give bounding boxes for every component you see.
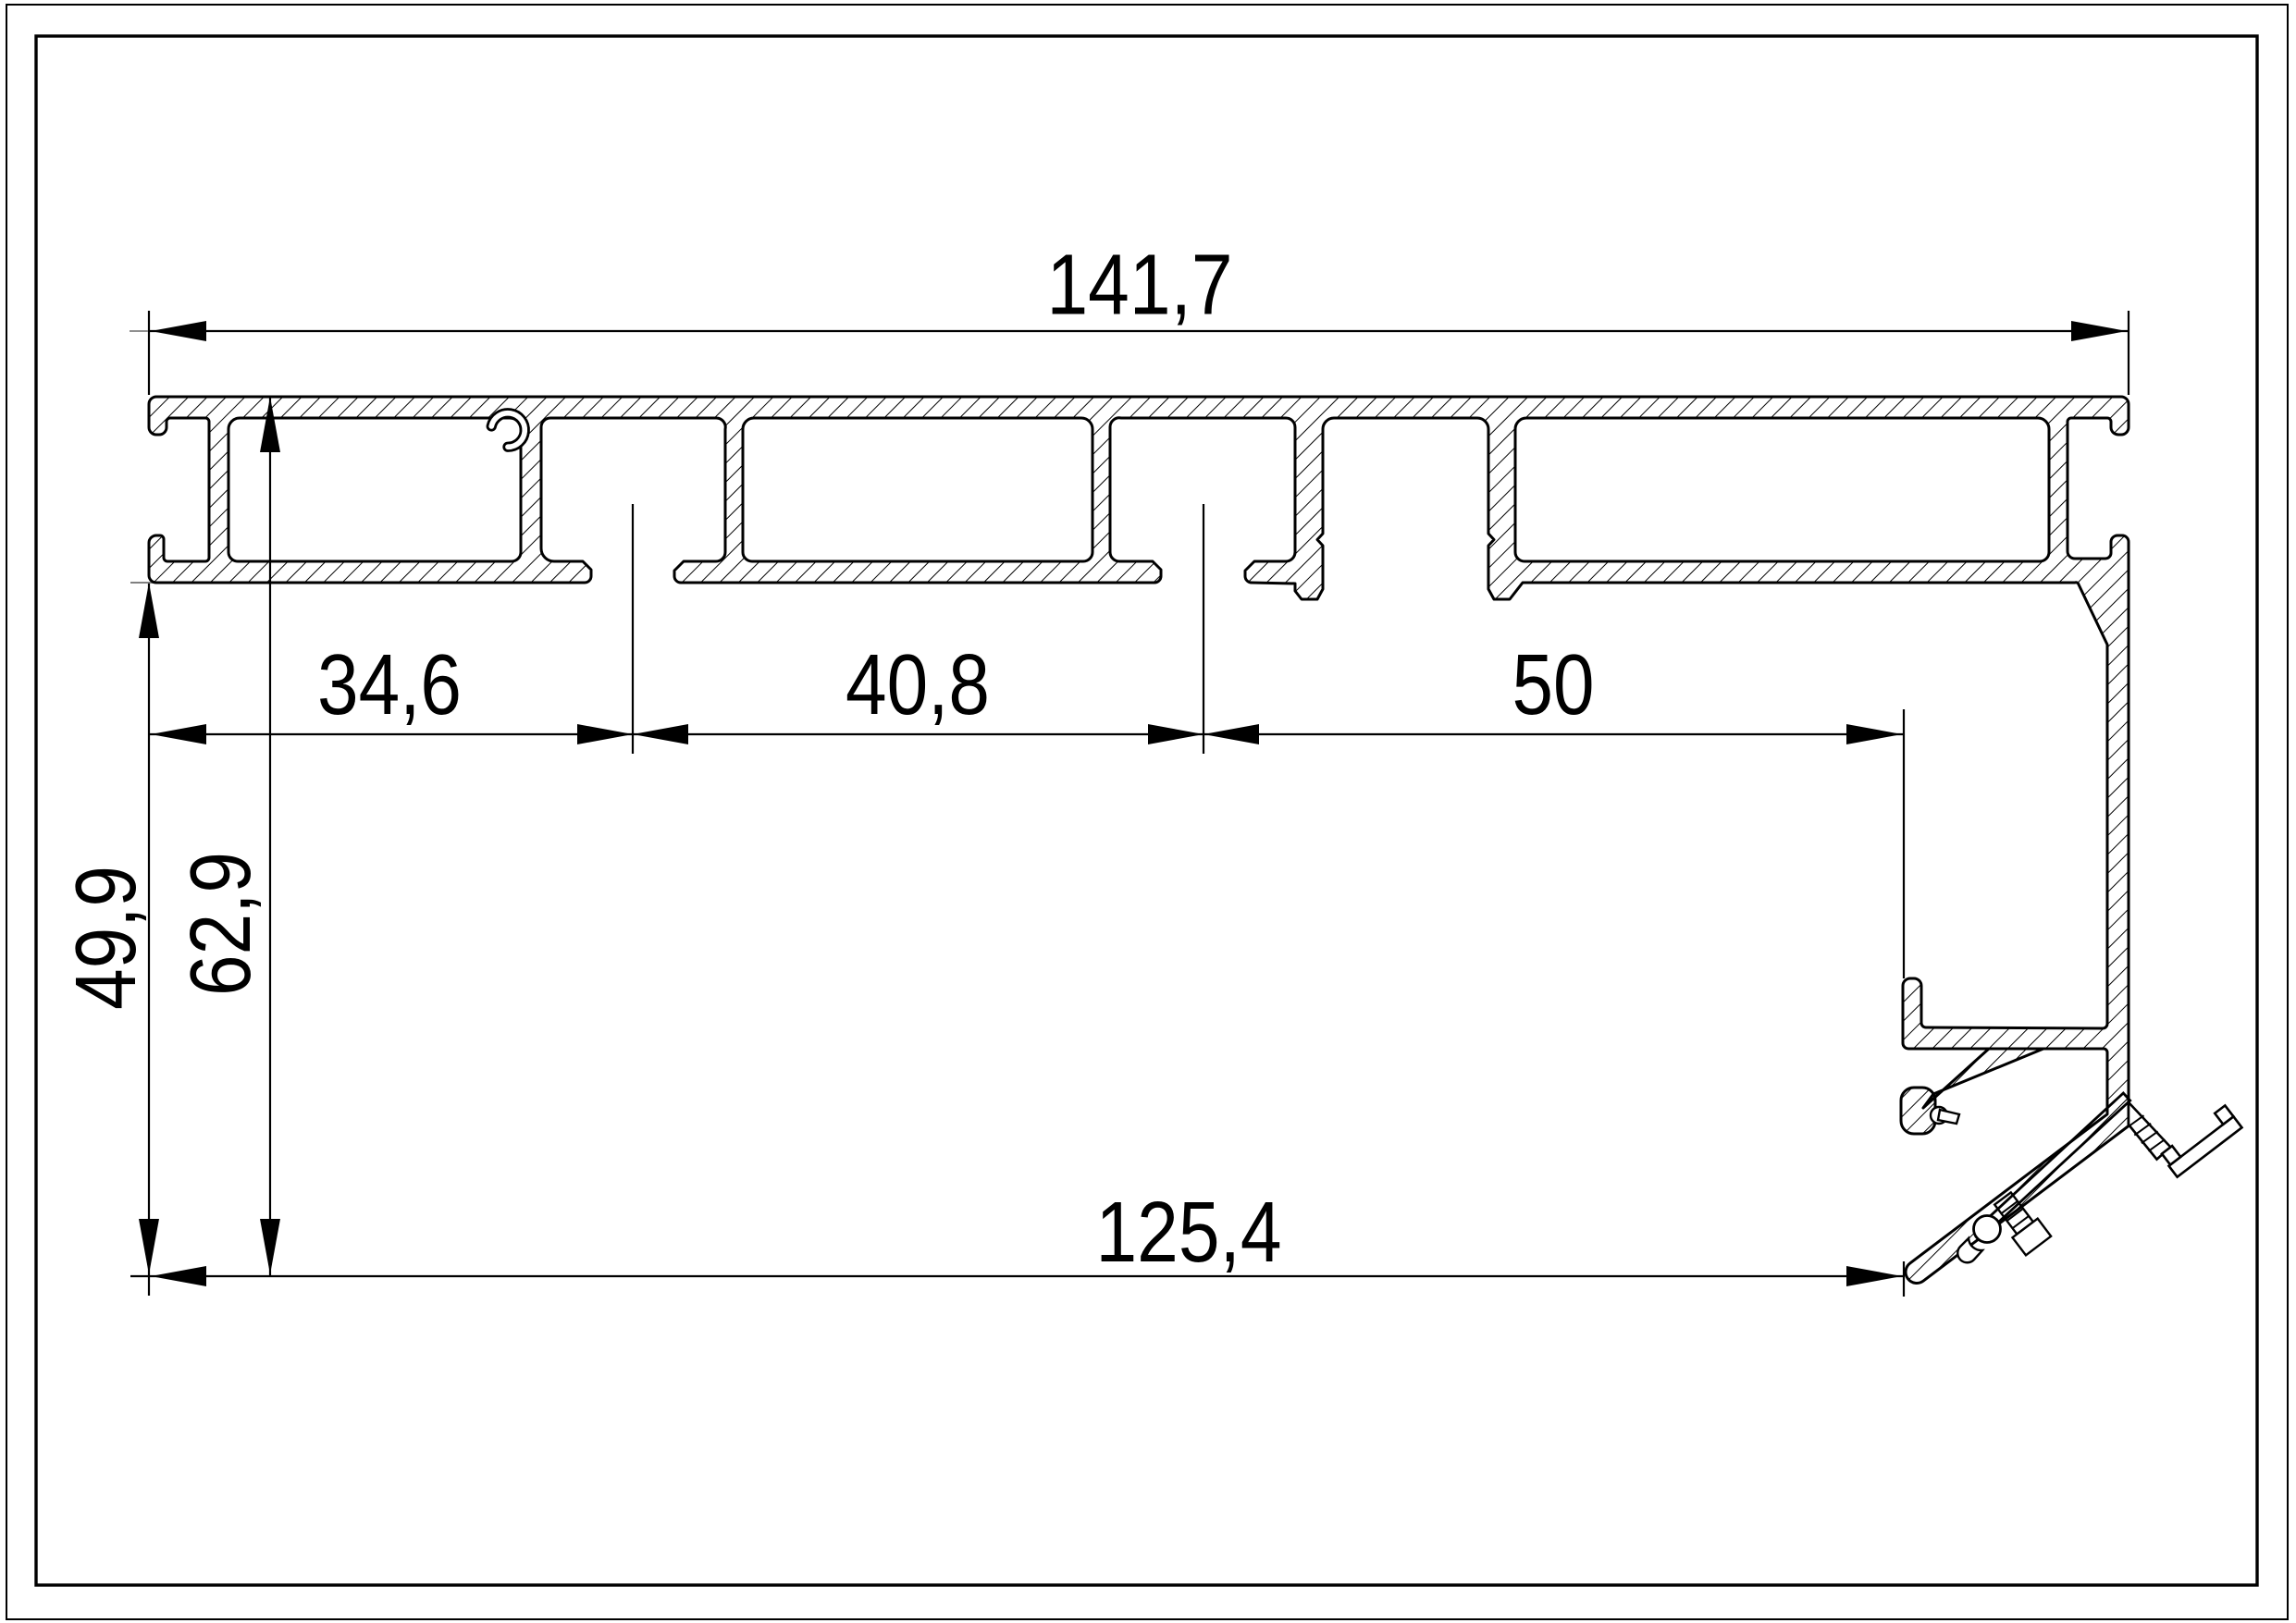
svg-text:125,4: 125,4 [1096, 1184, 1282, 1280]
svg-text:34,6: 34,6 [317, 636, 462, 732]
svg-text:141,7: 141,7 [1047, 237, 1233, 333]
svg-text:49,9: 49,9 [57, 866, 154, 1010]
svg-text:62,9: 62,9 [172, 852, 268, 996]
svg-text:40,8: 40,8 [846, 636, 990, 732]
svg-text:50: 50 [1512, 636, 1595, 732]
